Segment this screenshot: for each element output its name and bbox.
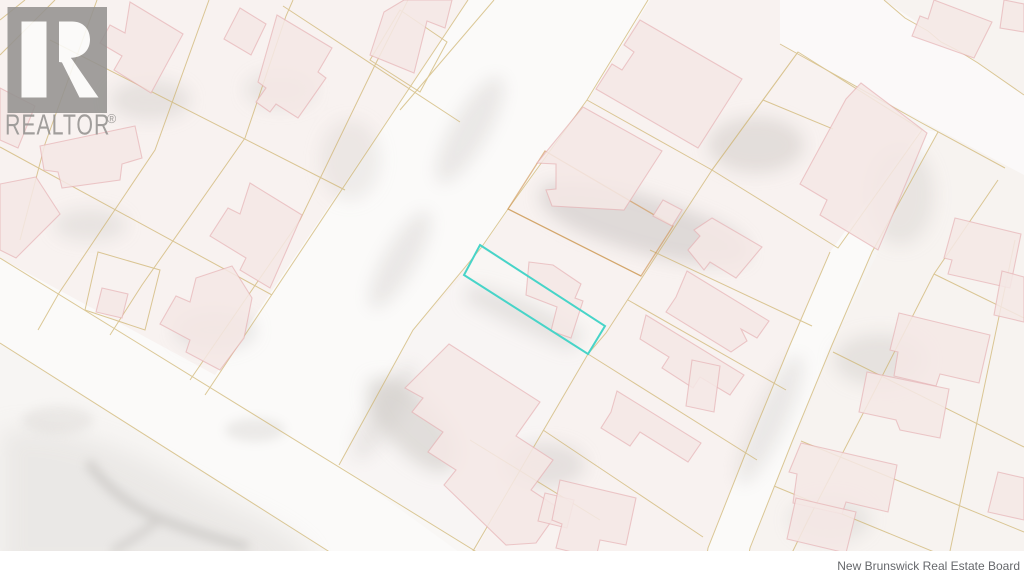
svg-text:®: ® xyxy=(107,112,117,126)
svg-text:REALTOR: REALTOR xyxy=(5,110,110,142)
svg-text:New Brunswick Real Estate Boar: New Brunswick Real Estate Board xyxy=(837,559,1020,573)
